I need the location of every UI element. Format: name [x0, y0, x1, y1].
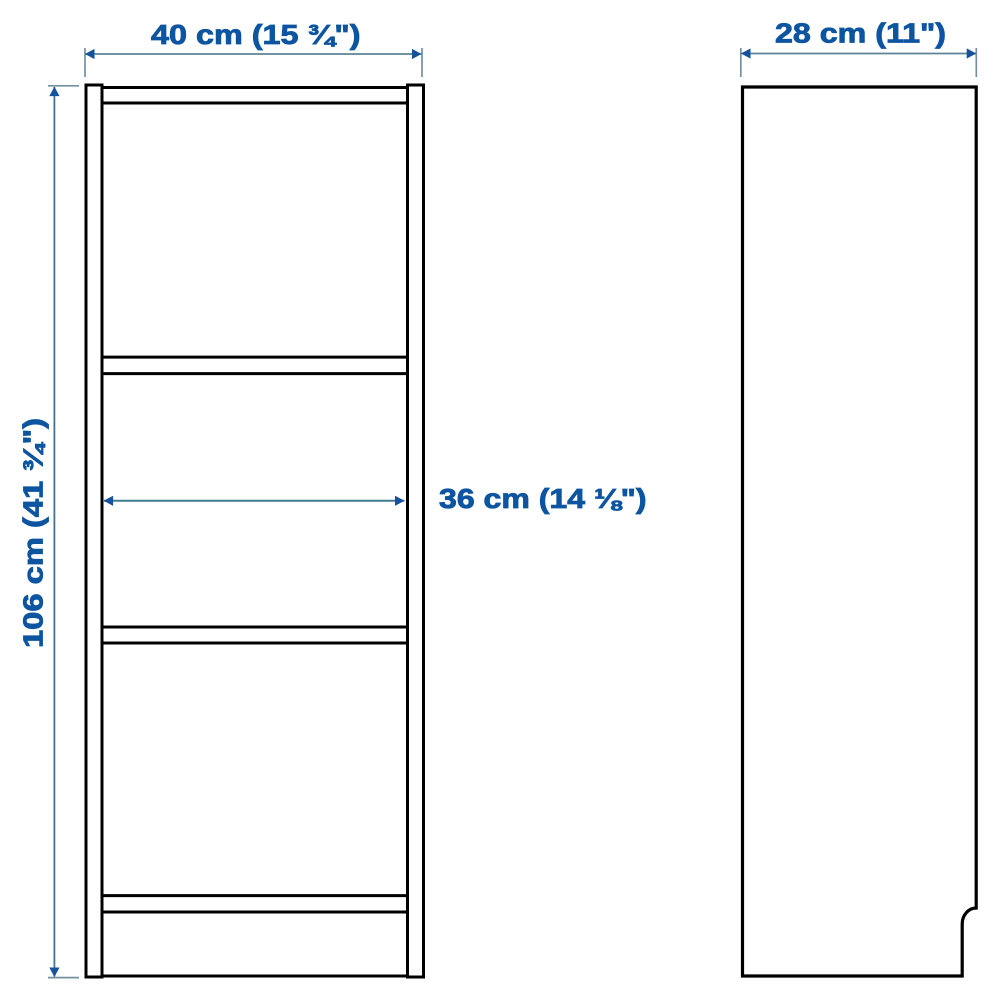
- svg-text:28 cm (11"): 28 cm (11"): [775, 18, 946, 49]
- svg-text:106 cm (41 ¾"): 106 cm (41 ¾"): [18, 418, 49, 648]
- svg-text:40 cm (15 ¾"): 40 cm (15 ¾"): [151, 19, 361, 50]
- svg-text:36 cm (14 ⅛"): 36 cm (14 ⅛"): [439, 483, 647, 514]
